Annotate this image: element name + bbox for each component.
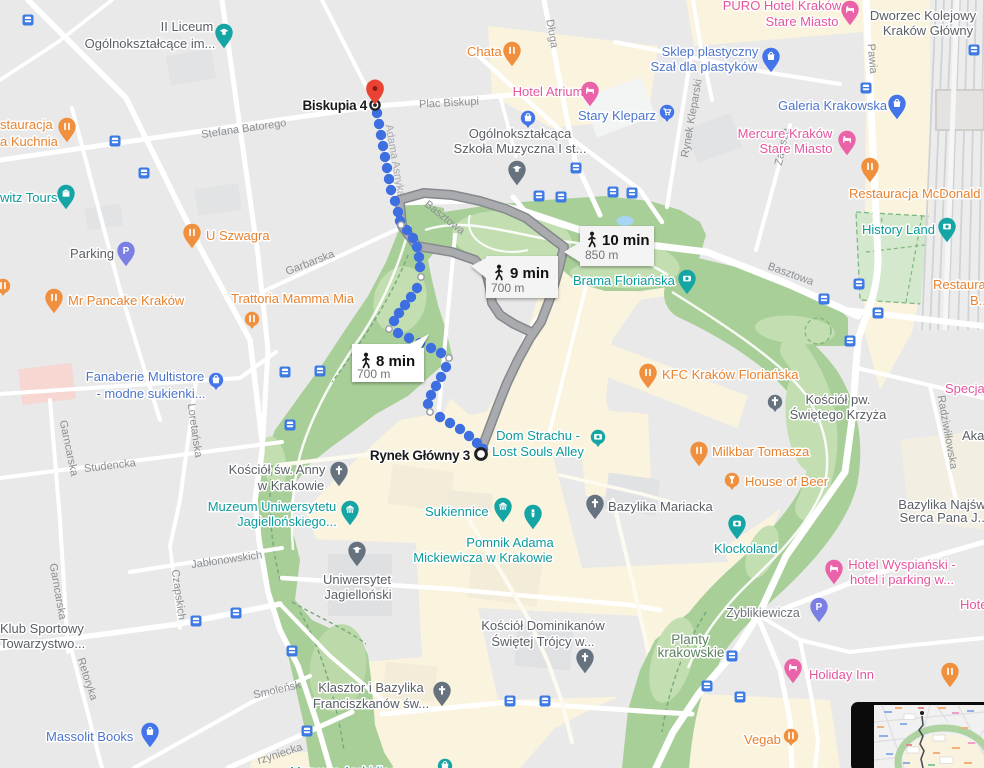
svg-text:P: P bbox=[816, 602, 823, 613]
svg-text:Sukiennice: Sukiennice bbox=[425, 504, 489, 519]
svg-text:Kościół pw.: Kościół pw. bbox=[805, 392, 870, 407]
svg-text:Kraków Główny: Kraków Główny bbox=[883, 23, 974, 38]
svg-text:P: P bbox=[123, 246, 130, 257]
svg-text:U Szwagra: U Szwagra bbox=[206, 228, 270, 243]
svg-text:Klasztor i Bazylika: Klasztor i Bazylika bbox=[318, 680, 424, 695]
svg-text:Stare Miasto: Stare Miasto bbox=[766, 14, 839, 29]
svg-text:Galeria Krakowska: Galeria Krakowska bbox=[778, 98, 888, 113]
svg-text:850 m: 850 m bbox=[585, 248, 618, 262]
svg-text:Restauracja McDonald: Restauracja McDonald bbox=[849, 186, 981, 201]
svg-text:Hotel Atrium: Hotel Atrium bbox=[513, 84, 584, 99]
svg-text:Dworzec Kolejowy: Dworzec Kolejowy bbox=[870, 8, 977, 23]
svg-text:stauracja: stauracja bbox=[0, 117, 54, 132]
svg-text:Hote: Hote bbox=[960, 597, 984, 612]
svg-text:Biskupia 4: Biskupia 4 bbox=[302, 98, 367, 113]
svg-text:Świętej Trójcy w...: Świętej Trójcy w... bbox=[491, 634, 594, 649]
svg-text:Ogólnokształcące im...: Ogólnokształcące im... bbox=[85, 36, 216, 51]
svg-text:Kościół św. Anny: Kościół św. Anny bbox=[229, 462, 326, 477]
svg-text:10 min: 10 min bbox=[602, 232, 650, 249]
svg-text:hotel i parking w...: hotel i parking w... bbox=[850, 572, 954, 587]
svg-text:Serca Pana J...: Serca Pana J... bbox=[900, 510, 984, 525]
svg-text:Hotel Wyspiański -: Hotel Wyspiański - bbox=[848, 557, 956, 572]
svg-text:Bazylika Mariacka: Bazylika Mariacka bbox=[608, 499, 714, 514]
svg-text:PURO Hotel Kraków: PURO Hotel Kraków bbox=[723, 0, 842, 13]
svg-text:Brama Floriańska: Brama Floriańska bbox=[573, 273, 676, 288]
svg-text:Dom Strachu -: Dom Strachu - bbox=[496, 428, 580, 443]
svg-text:Rynek Główny 3: Rynek Główny 3 bbox=[370, 448, 471, 463]
svg-text:a Kuchnia: a Kuchnia bbox=[0, 134, 59, 149]
svg-text:KFC Kraków Floriańska: KFC Kraków Floriańska bbox=[662, 367, 799, 382]
svg-text:Lost Souls Alley: Lost Souls Alley bbox=[492, 444, 584, 459]
svg-text:Holiday Inn: Holiday Inn bbox=[809, 667, 874, 682]
svg-text:History Land: History Land bbox=[862, 222, 935, 237]
svg-text:Pomnik Adama: Pomnik Adama bbox=[466, 535, 554, 550]
svg-text:B...: B... bbox=[970, 293, 984, 308]
svg-text:Kościół Dominikanów: Kościół Dominikanów bbox=[481, 618, 605, 633]
svg-text:Muzeum Archidiec: Muzeum Archidiec bbox=[290, 764, 397, 768]
svg-text:700 m: 700 m bbox=[357, 367, 390, 381]
svg-text:Muzeum Uniwersytetu: Muzeum Uniwersytetu bbox=[208, 499, 337, 514]
svg-text:Towarzystwo...: Towarzystwo... bbox=[0, 636, 85, 651]
svg-text:Vegab: Vegab bbox=[744, 732, 781, 747]
svg-text:Mr Pancake Kraków: Mr Pancake Kraków bbox=[68, 293, 185, 308]
svg-text:Franciszkanów św...: Franciszkanów św... bbox=[313, 696, 429, 711]
svg-text:Massolit Books: Massolit Books bbox=[46, 729, 134, 744]
svg-text:krakowskie: krakowskie bbox=[658, 645, 725, 660]
svg-text:Świętego Krzyża: Świętego Krzyża bbox=[790, 407, 888, 422]
svg-text:witz Tours: witz Tours bbox=[0, 190, 58, 205]
svg-text:Szał dla plastyków: Szał dla plastyków bbox=[651, 59, 759, 74]
svg-text:Klockoland: Klockoland bbox=[714, 541, 778, 556]
svg-text:Uniwersytet: Uniwersytet bbox=[323, 572, 391, 587]
svg-text:- modne sukienki...: - modne sukienki... bbox=[96, 386, 205, 401]
svg-text:Akade: Akade bbox=[962, 428, 984, 443]
svg-text:700 m: 700 m bbox=[491, 281, 524, 295]
svg-text:Milkbar Tomasza: Milkbar Tomasza bbox=[712, 444, 810, 459]
svg-text:Chata: Chata bbox=[467, 44, 502, 59]
svg-text:Ogólnokształcąca: Ogólnokształcąca bbox=[469, 126, 572, 141]
svg-text:Restaura: Restaura bbox=[933, 277, 984, 292]
svg-text:Jagielloński: Jagielloński bbox=[324, 587, 391, 602]
svg-text:9 min: 9 min bbox=[510, 265, 549, 282]
svg-text:Mercure Kraków: Mercure Kraków bbox=[738, 126, 833, 141]
svg-text:II Liceum: II Liceum bbox=[161, 19, 214, 34]
svg-text:Sklep plastyczny: Sklep plastyczny bbox=[662, 44, 759, 59]
svg-text:Parking: Parking bbox=[70, 246, 114, 261]
svg-text:Jagiellońskiego...: Jagiellońskiego... bbox=[237, 514, 337, 529]
svg-text:Fanaberie Multistore: Fanaberie Multistore bbox=[86, 369, 205, 384]
svg-text:w Krakowie: w Krakowie bbox=[257, 478, 324, 493]
svg-text:Klub Sportowy: Klub Sportowy bbox=[0, 621, 84, 636]
svg-text:Mickiewicza w Krakowie: Mickiewicza w Krakowie bbox=[413, 550, 552, 565]
svg-text:Trattoria Mamma Mia: Trattoria Mamma Mia bbox=[231, 291, 355, 306]
svg-text:House of Beer: House of Beer bbox=[745, 474, 829, 489]
svg-text:Zyblikiewicza: Zyblikiewicza bbox=[726, 606, 800, 620]
svg-text:Stary Kleparz: Stary Kleparz bbox=[578, 108, 656, 123]
svg-text:Szkoła Muzyczna I st...: Szkoła Muzyczna I st... bbox=[454, 141, 587, 156]
svg-text:Stare Miasto: Stare Miasto bbox=[760, 141, 833, 156]
svg-text:Specja: Specja bbox=[945, 381, 984, 396]
